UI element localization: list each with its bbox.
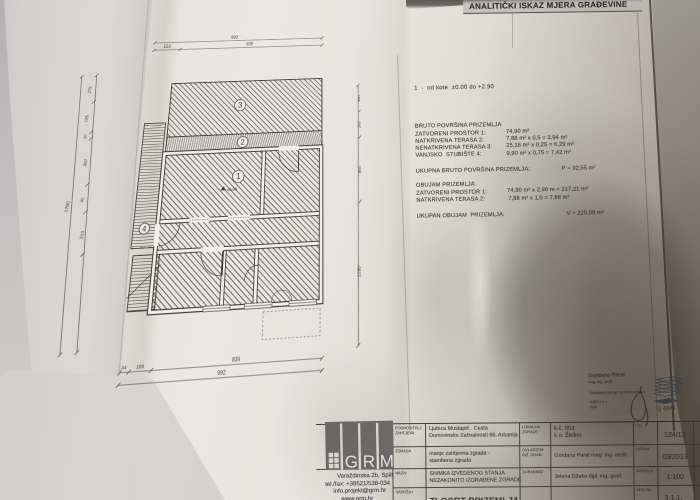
svg-text:992: 992: [217, 369, 227, 377]
svg-text:G: G: [345, 452, 359, 471]
svg-text:1: 1: [236, 171, 241, 182]
svg-text:30: 30: [83, 135, 88, 140]
svg-text:839: 839: [232, 356, 241, 364]
svg-text:992: 992: [231, 35, 239, 40]
svg-text:1280: 1280: [356, 265, 362, 277]
svg-text:±0.00: ±0.00: [227, 187, 237, 192]
svg-text:109: 109: [136, 362, 145, 370]
svg-text:44: 44: [121, 364, 128, 372]
svg-text:R: R: [363, 452, 376, 471]
svg-text:497: 497: [82, 159, 89, 167]
svg-text:125: 125: [83, 114, 90, 122]
svg-text:860: 860: [357, 165, 362, 173]
svg-text:313: 313: [78, 230, 86, 239]
svg-text:275: 275: [86, 86, 93, 94]
svg-text:40: 40: [80, 198, 86, 203]
svg-text:839: 839: [246, 41, 254, 46]
svg-text:153: 153: [163, 44, 171, 49]
svg-text:1780: 1780: [63, 200, 71, 212]
svg-text:3: 3: [238, 100, 243, 110]
svg-text:2: 2: [240, 139, 245, 147]
svg-text:M: M: [380, 452, 395, 471]
